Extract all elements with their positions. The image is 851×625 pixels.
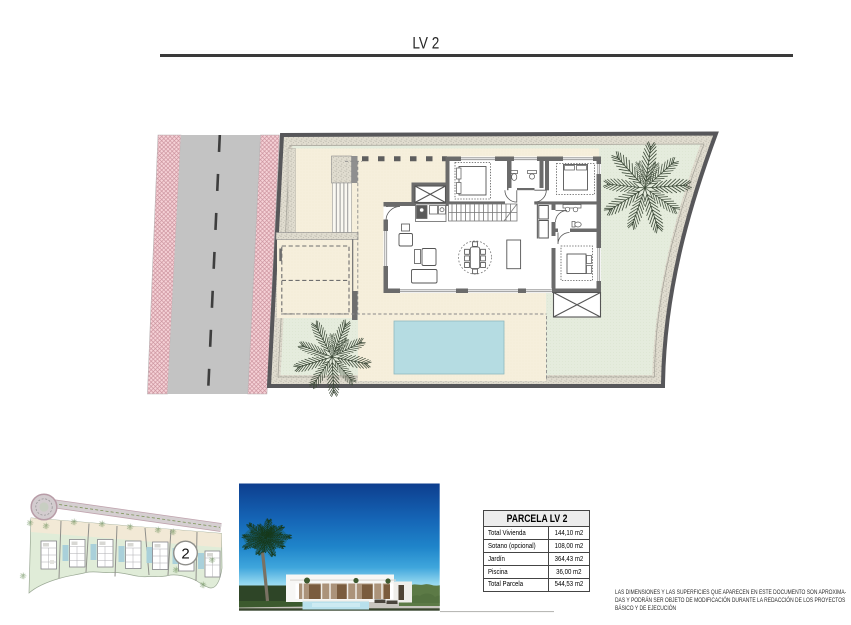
svg-text:2: 2 (181, 546, 189, 563)
